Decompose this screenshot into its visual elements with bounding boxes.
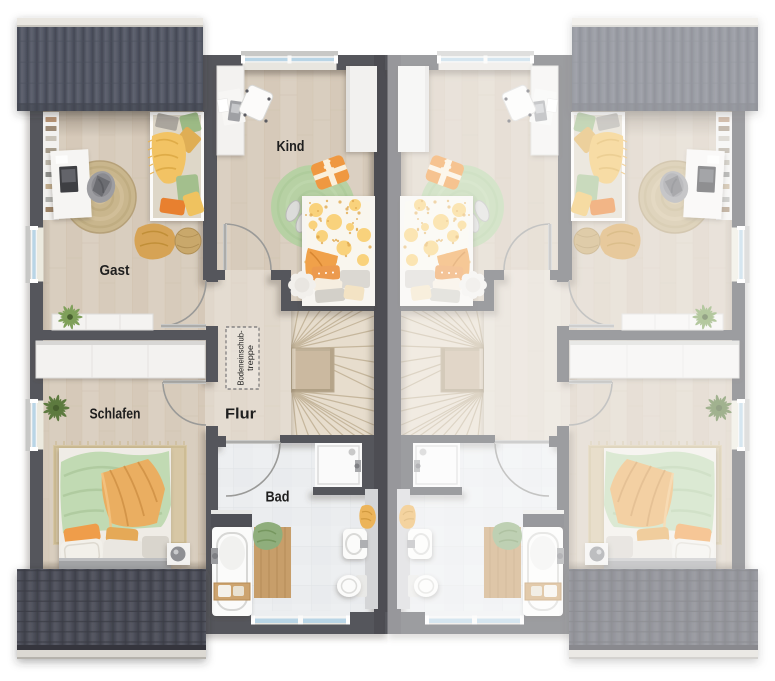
svg-text:Kind: Kind [277,139,305,155]
svg-text:Schlafen: Schlafen [90,407,141,423]
svg-text:Gast: Gast [100,263,130,279]
svg-text:Bad: Bad [266,490,290,506]
svg-text:Flur: Flur [225,407,256,423]
svg-text:treppe: treppe [245,345,255,371]
